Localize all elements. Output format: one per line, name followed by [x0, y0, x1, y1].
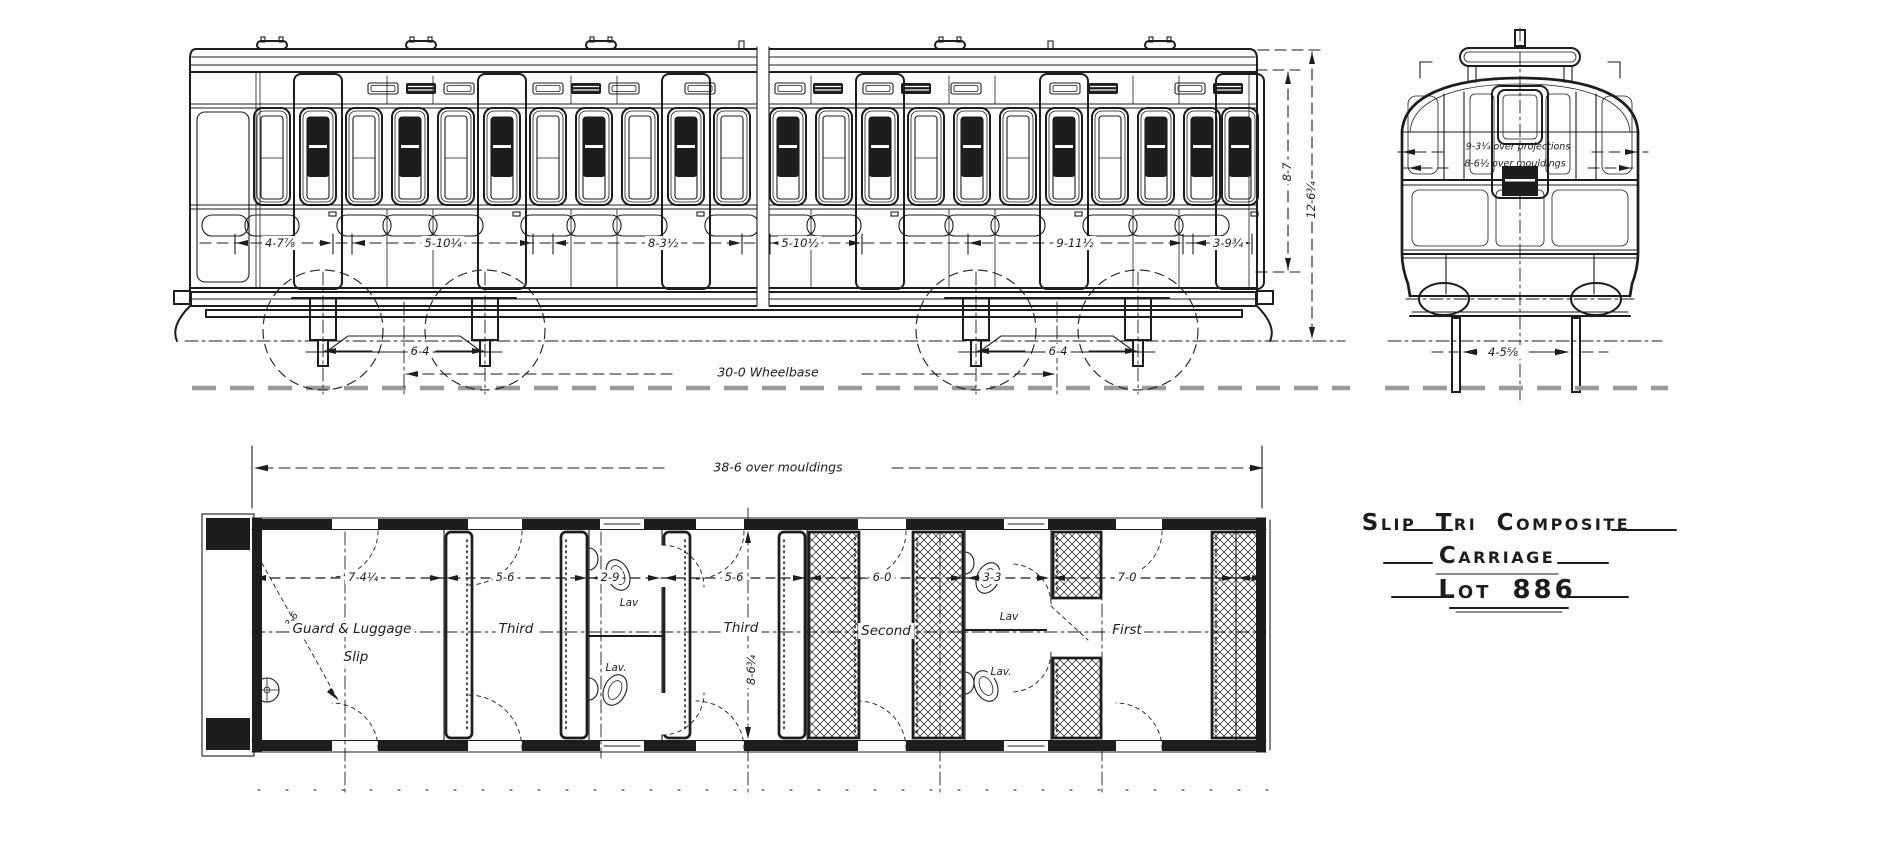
plan-dim-second: 6-0: [870, 570, 895, 584]
plan-dim-lav-a: 2-9: [598, 570, 623, 584]
width-over-mouldings-dim: 8-6½ over mouldings: [1461, 159, 1568, 170]
side-dim-2: 5-10¼: [421, 236, 464, 250]
side-dim-6: 3-9¾: [1210, 236, 1246, 250]
compartment-lav-b-upper: Lav: [997, 611, 1022, 623]
plan-dim-lav-b: 3-3: [980, 570, 1005, 584]
compartment-third-b: Third: [721, 620, 762, 636]
title-line-3: Lot 886: [1438, 575, 1575, 605]
overall-length-dim: 38-6 over mouldings: [710, 460, 845, 475]
bogie-dim-left: 6-4: [408, 344, 433, 358]
compartment-third-a: Third: [496, 621, 537, 637]
side-dim-5: 9-11½: [1053, 236, 1096, 250]
compartment-second: Second: [858, 623, 914, 639]
plan-dim-guard: 7-4¼: [345, 570, 381, 584]
wheelbase-label: 30-0 Wheelbase: [714, 365, 821, 380]
compartment-first: First: [1109, 622, 1144, 638]
height-overall-dim: 12-6¾: [1304, 178, 1318, 221]
bogie-dim-right: 6-4: [1046, 344, 1071, 358]
engineering-drawing: [0, 0, 1900, 843]
compartment-guard-luggage: Guard & Luggage: [290, 621, 415, 637]
plan-dim-first: 7-0: [1115, 570, 1140, 584]
side-dim-1: 4-7⅞: [262, 236, 298, 250]
compartment-lav-a-lower: Lav.: [603, 662, 630, 674]
compartment-lav-b-lower: Lav.: [988, 666, 1015, 678]
compartment-slip: Slip: [341, 649, 372, 665]
height-to-cantrail-dim: 8-7: [1280, 160, 1294, 185]
floor-plan-drawing: [202, 446, 1272, 792]
side-elevation-drawing: [174, 37, 1350, 394]
end-elevation-drawing: [1385, 28, 1668, 400]
plan-dim-third-b: 5-6: [722, 570, 747, 584]
underframe-width-dim: 4-5⅝: [1485, 345, 1521, 359]
blueprint-canvas: 4-7⅞ 5-10¼ 8-3½ 5-10½ 9-11½ 3-9¾ 6-4 6-4…: [0, 0, 1900, 843]
body-width-dim: 8-6¾: [744, 652, 758, 688]
width-over-projections-dim: 9-3¼ over projections: [1463, 142, 1574, 153]
title-line-2: Carriage: [1439, 543, 1555, 569]
plan-dim-third-a: 5-6: [493, 570, 518, 584]
compartment-lav-a-upper: Lav: [617, 597, 642, 609]
title-line-1: Slip Tri Composite: [1362, 510, 1630, 536]
side-dim-3: 8-3½: [645, 236, 681, 250]
side-dim-4: 5-10½: [778, 236, 821, 250]
